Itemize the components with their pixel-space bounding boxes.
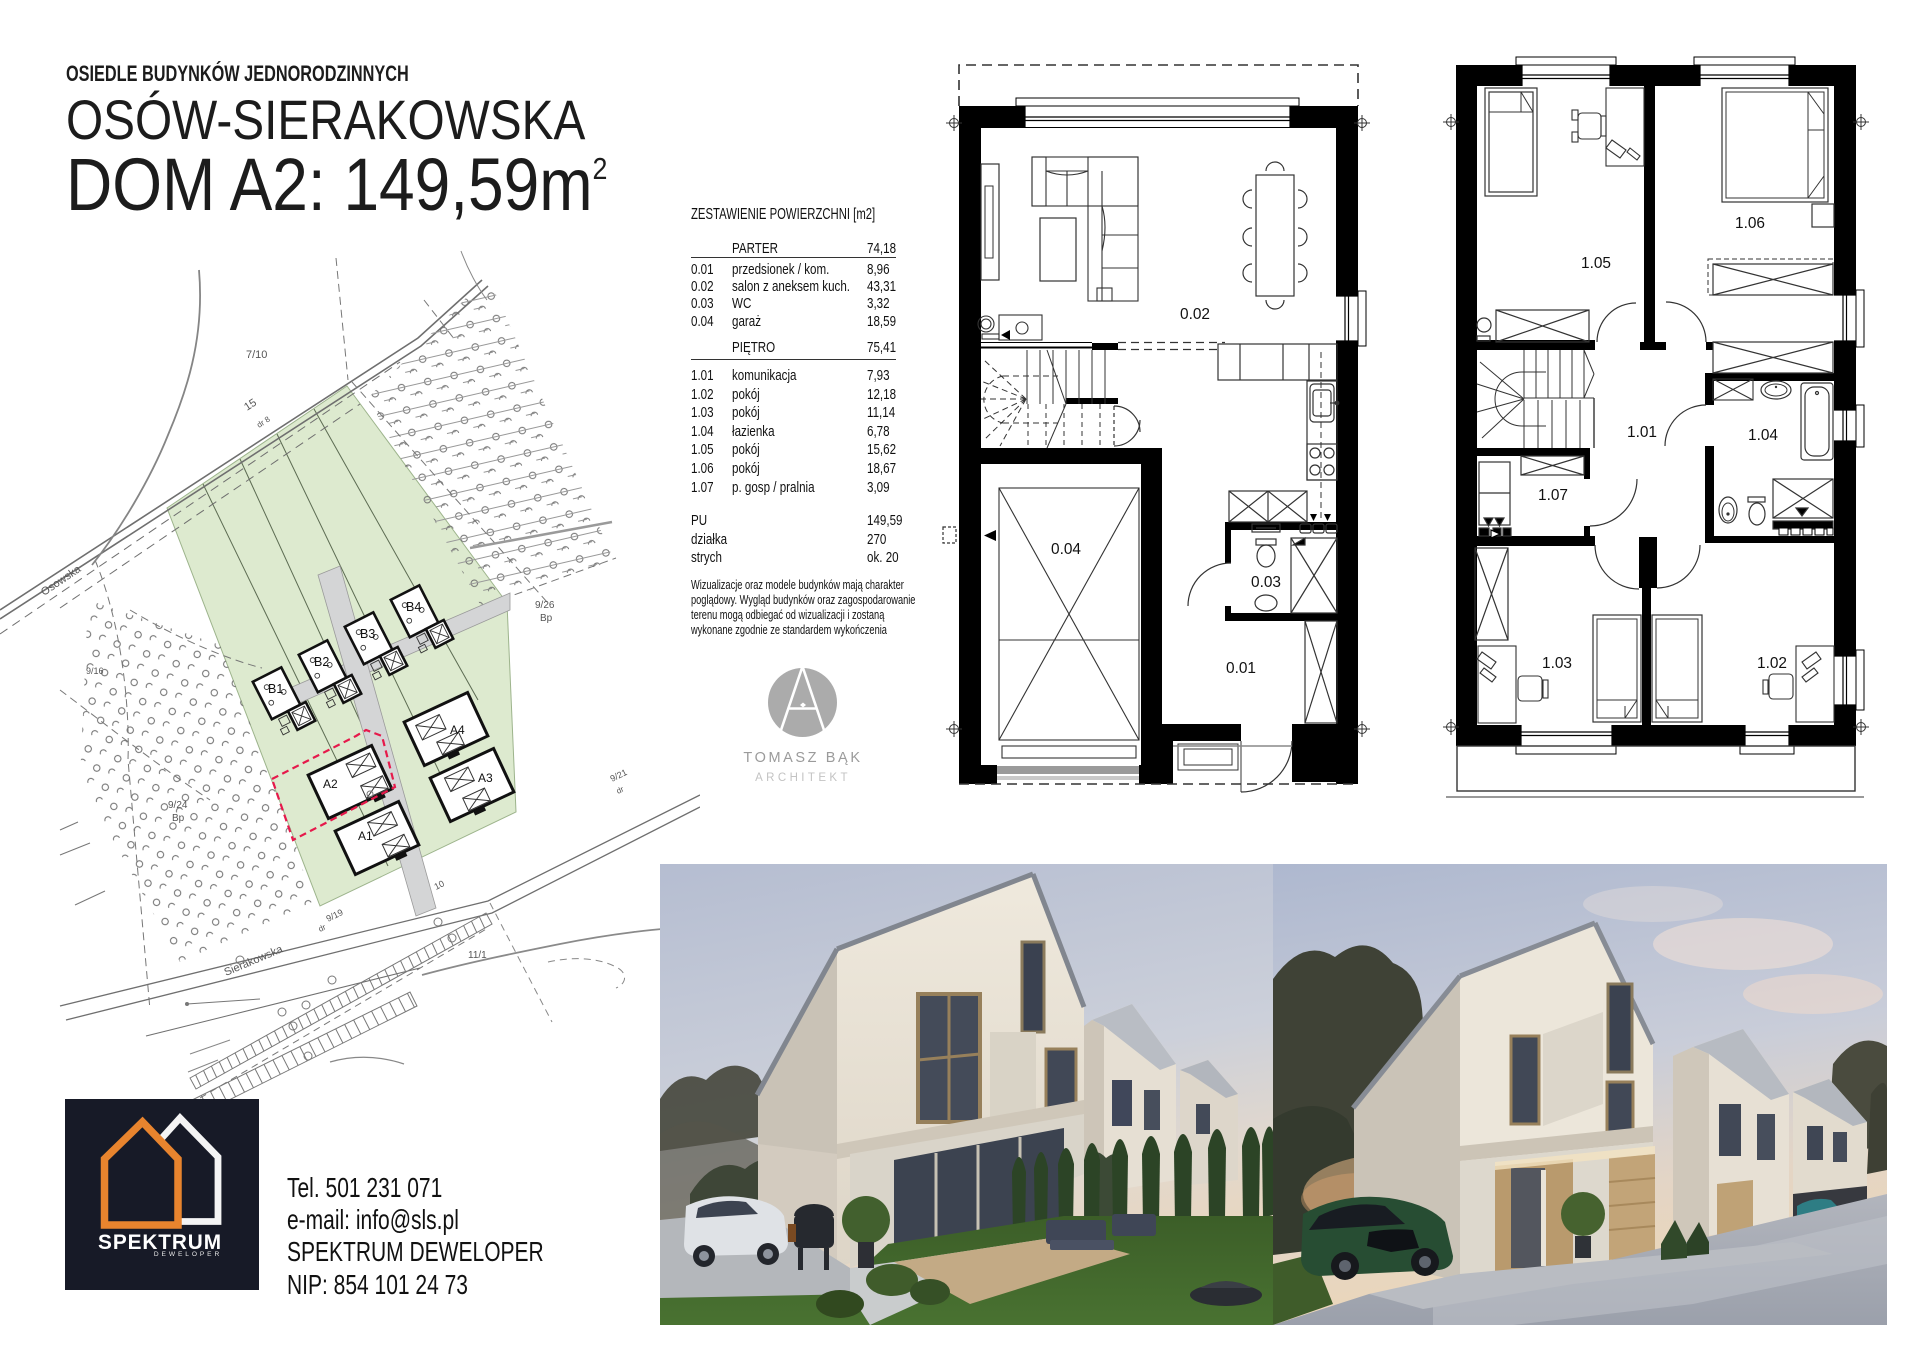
svg-text:1.06: 1.06 <box>1735 215 1765 232</box>
svg-text:1.02: 1.02 <box>1757 655 1787 672</box>
svg-text:1.03: 1.03 <box>1542 655 1572 672</box>
svg-text:9/24: 9/24 <box>168 800 188 811</box>
svg-text:A3: A3 <box>478 771 493 785</box>
svg-text:A4: A4 <box>450 723 465 737</box>
svg-text:TOMASZ BĄK: TOMASZ BĄK <box>743 750 862 766</box>
svg-text:9/16: 9/16 <box>86 666 104 676</box>
svg-text:DEWELOPER: DEWELOPER <box>154 1251 222 1258</box>
svg-text:9/21: 9/21 <box>608 767 628 784</box>
svg-text:0.03: 0.03 <box>1251 574 1281 591</box>
svg-text:ARCHITEKT: ARCHITEKT <box>755 772 851 784</box>
svg-text:B4: B4 <box>406 600 421 614</box>
svg-text:0.02: 0.02 <box>1180 306 1210 323</box>
svg-text:B2: B2 <box>314 655 329 669</box>
svg-text:1.04: 1.04 <box>1748 427 1778 444</box>
svg-text:B3: B3 <box>360 627 375 641</box>
svg-text:dr: dr <box>317 922 328 933</box>
svg-text:9/19: 9/19 <box>324 907 344 924</box>
svg-text:1.01: 1.01 <box>1627 424 1657 441</box>
svg-text:1.05: 1.05 <box>1581 255 1611 272</box>
svg-text:dr: dr <box>615 784 626 795</box>
svg-text:0.04: 0.04 <box>1051 541 1081 558</box>
svg-text:B1: B1 <box>268 682 283 696</box>
svg-text:7/10: 7/10 <box>246 349 267 361</box>
svg-text:Bp: Bp <box>540 613 553 624</box>
svg-text:A1: A1 <box>358 829 373 843</box>
svg-text:0.01: 0.01 <box>1226 660 1256 677</box>
svg-text:10: 10 <box>432 878 445 891</box>
svg-text:9/26: 9/26 <box>535 600 555 611</box>
svg-text:Bp: Bp <box>172 813 185 824</box>
svg-text:1.07: 1.07 <box>1538 487 1568 504</box>
svg-text:dr 8: dr 8 <box>255 414 272 429</box>
svg-text:A2: A2 <box>323 777 338 791</box>
svg-text:15: 15 <box>242 397 259 414</box>
